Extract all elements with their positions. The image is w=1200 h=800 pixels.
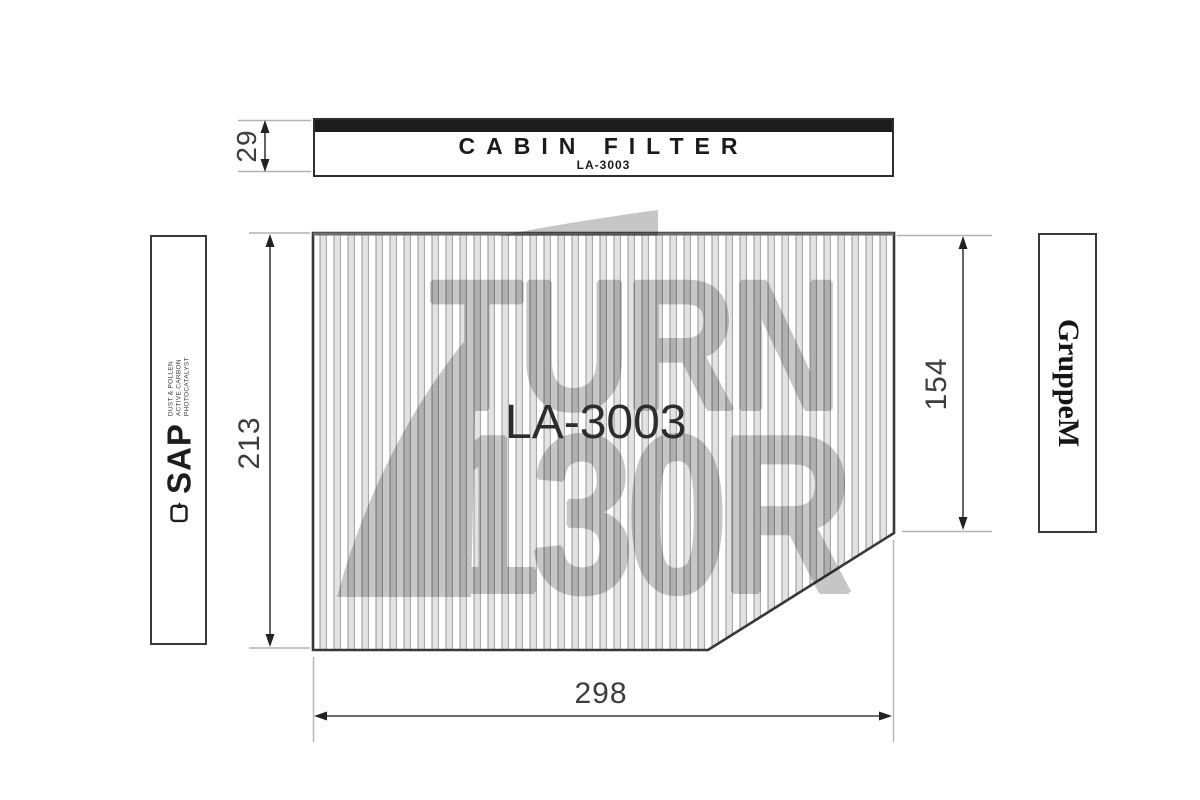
left-brand-box: SAP DUST & POLLEN ACTIVE CARBON PHOTOCAT… (150, 235, 207, 645)
left-brand-sublines: DUST & POLLEN ACTIVE CARBON PHOTOCATALYS… (167, 357, 191, 416)
title-plate-part-number: LA-3003 (315, 159, 892, 171)
dimension-width: 298 (574, 679, 627, 709)
left-brand-subline-3: PHOTOCATALYST (183, 357, 191, 416)
dimension-left-height: 213 (235, 416, 265, 469)
droplet-icon (167, 501, 191, 523)
dimension-plate-height: 29 (233, 129, 261, 162)
filter-part-number: LA-3003 (505, 399, 686, 447)
right-brand-box: GruppeM (1038, 233, 1097, 533)
title-plate: CABIN FILTER LA-3003 (313, 118, 894, 177)
left-brand-subline-2: ACTIVE CARBON (175, 357, 183, 416)
title-plate-title: CABIN FILTER (315, 135, 892, 158)
dimension-right-height: 154 (922, 357, 952, 410)
left-brand-rotated-content: SAP DUST & POLLEN ACTIVE CARBON PHOTOCAT… (162, 357, 195, 523)
right-brand-text: GruppeM (1053, 319, 1083, 447)
left-brand-text: SAP (162, 423, 195, 494)
title-plate-band (315, 120, 892, 132)
diagram-canvas: TURN 130R LA-3003 CABIN FILTER LA-3003 S… (0, 0, 1200, 800)
left-brand-subline-1: DUST & POLLEN (167, 357, 175, 416)
